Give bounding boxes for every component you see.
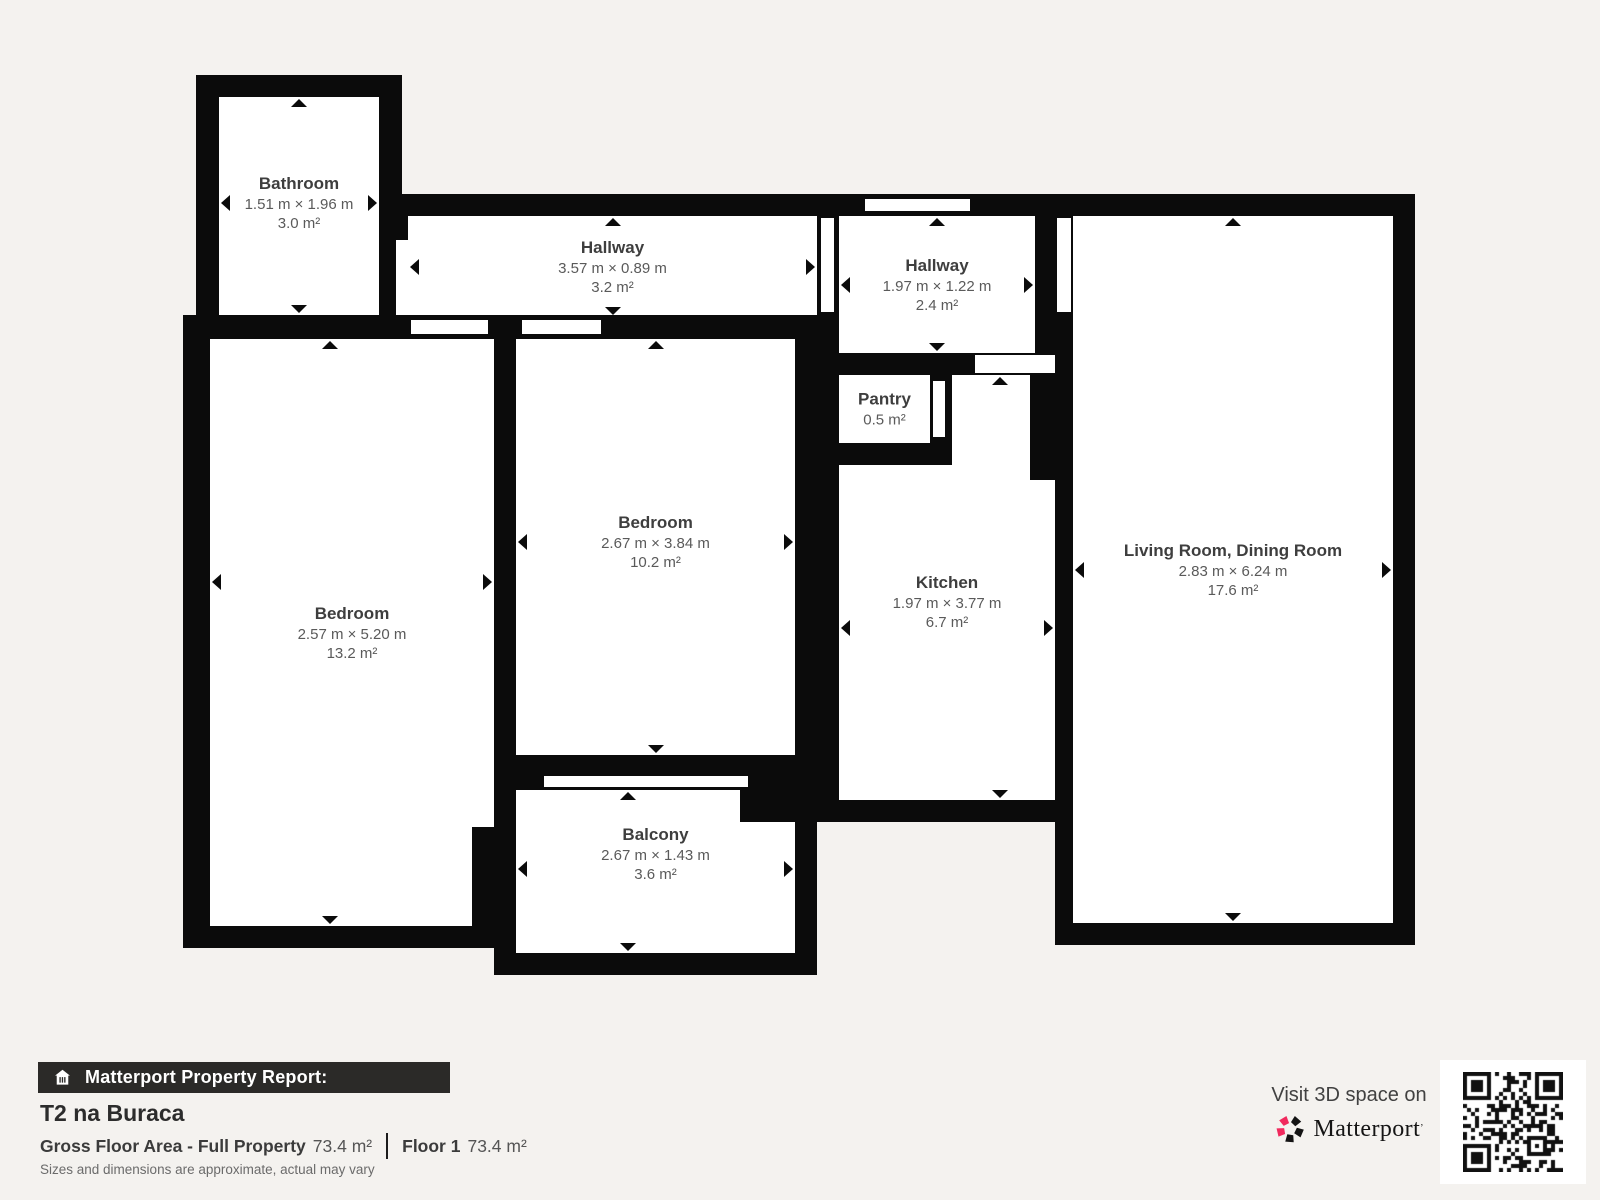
- up-measure-arrow-kitchen: [992, 377, 1008, 385]
- door-opening: [396, 240, 408, 315]
- room-dimensions: 2.57 m × 5.20 m: [298, 625, 407, 644]
- room-label-bedroom-left: Bedroom2.57 m × 5.20 m13.2 m²: [298, 603, 407, 663]
- wall: [817, 443, 952, 465]
- right-measure-arrow-bathroom: [368, 195, 377, 211]
- report-bar-label: Matterport Property Report:: [85, 1067, 327, 1088]
- left-measure-arrow-bedroom-left: [212, 574, 221, 590]
- right-measure-arrow-balcony: [784, 861, 793, 877]
- up-measure-arrow-bedroom-left: [322, 341, 338, 349]
- room-area: 10.2 m²: [601, 553, 710, 572]
- room-name: Pantry: [858, 389, 911, 411]
- divider: [386, 1133, 388, 1159]
- brand-mark: ’: [1420, 1124, 1423, 1134]
- floor-area-info: Gross Floor Area - Full Property 73.4 m²…: [40, 1133, 527, 1159]
- gross-floor-area-label: Gross Floor Area - Full Property: [40, 1136, 306, 1157]
- right-measure-arrow-bedroom-center: [784, 534, 793, 550]
- down-measure-arrow-hallway-entry: [929, 343, 945, 351]
- room-area: 2.4 m²: [883, 296, 992, 315]
- house-icon: [53, 1068, 72, 1087]
- up-measure-arrow-bedroom-center: [648, 341, 664, 349]
- up-measure-arrow-balcony: [620, 792, 636, 800]
- down-measure-arrow-hallway-top: [605, 307, 621, 315]
- down-measure-arrow-balcony: [620, 943, 636, 951]
- room-label-bathroom: Bathroom1.51 m × 1.96 m3.0 m²: [245, 173, 354, 233]
- left-measure-arrow-kitchen: [841, 620, 850, 636]
- door-opening: [1057, 218, 1071, 312]
- door-opening: [821, 218, 834, 312]
- window-opening: [544, 776, 748, 787]
- wall: [795, 755, 817, 975]
- room-dimensions: 2.67 m × 3.84 m: [601, 534, 710, 553]
- room-label-hallway-entry: Hallway1.97 m × 1.22 m2.4 m²: [883, 255, 992, 315]
- room-name: Living Room, Dining Room: [1124, 540, 1342, 562]
- floor-label: Floor 1: [402, 1136, 460, 1157]
- down-measure-arrow-bedroom-left: [322, 916, 338, 924]
- room-kitchen: [952, 375, 1030, 465]
- floor-value: 73.4 m²: [467, 1136, 526, 1157]
- room-name: Balcony: [601, 824, 710, 846]
- wall: [196, 75, 219, 337]
- left-measure-arrow-bathroom: [221, 195, 230, 211]
- matterport-wordmark: Matterport: [1314, 1116, 1421, 1143]
- room-name: Kitchen: [893, 572, 1002, 594]
- left-measure-arrow-hallway-top: [410, 259, 419, 275]
- room-label-balcony: Balcony2.67 m × 1.43 m3.6 m²: [601, 824, 710, 884]
- up-measure-arrow-living-dining: [1225, 218, 1241, 226]
- down-measure-arrow-kitchen: [992, 790, 1008, 798]
- room-label-living-dining: Living Room, Dining Room2.83 m × 6.24 m1…: [1124, 540, 1342, 600]
- room-area: 0.5 m²: [858, 411, 911, 430]
- matterport-floorplan-report: Bathroom1.51 m × 1.96 m3.0 m²Hallway3.57…: [0, 0, 1600, 1200]
- down-measure-arrow-living-dining: [1225, 913, 1241, 921]
- left-measure-arrow-hallway-entry: [841, 277, 850, 293]
- wall: [183, 926, 494, 948]
- room-area: 13.2 m²: [298, 644, 407, 663]
- down-measure-arrow-bedroom-center: [648, 745, 664, 753]
- right-measure-arrow-hallway-top: [806, 259, 815, 275]
- wall: [183, 315, 210, 948]
- property-title: T2 na Buraca: [40, 1100, 184, 1127]
- right-measure-arrow-living-dining: [1382, 562, 1391, 578]
- room-area: 17.6 m²: [1124, 581, 1342, 600]
- right-measure-arrow-kitchen: [1044, 620, 1053, 636]
- room-dimensions: 1.97 m × 1.22 m: [883, 277, 992, 296]
- room-area: 3.0 m²: [245, 214, 354, 233]
- right-measure-arrow-bedroom-left: [483, 574, 492, 590]
- up-measure-arrow-hallway-top: [605, 218, 621, 226]
- room-dimensions: 1.97 m × 3.77 m: [893, 594, 1002, 613]
- room-dimensions: 1.51 m × 1.96 m: [245, 195, 354, 214]
- left-measure-arrow-bedroom-center: [518, 534, 527, 550]
- visit-3d-promo: Visit 3D space on Matterport’: [1254, 1083, 1444, 1144]
- wall: [472, 827, 494, 926]
- window-opening: [522, 320, 601, 334]
- room-name: Bathroom: [245, 173, 354, 195]
- room-label-pantry: Pantry0.5 m²: [858, 389, 911, 430]
- room-name: Hallway: [883, 255, 992, 277]
- room-area: 3.2 m²: [558, 278, 667, 297]
- right-measure-arrow-hallway-entry: [1024, 277, 1033, 293]
- up-measure-arrow-bathroom: [291, 99, 307, 107]
- wall: [494, 315, 516, 975]
- visit-3d-text: Visit 3D space on: [1254, 1083, 1444, 1107]
- matterport-logo: Matterport’: [1254, 1114, 1444, 1144]
- wall: [1055, 923, 1415, 945]
- window-opening: [865, 199, 970, 211]
- up-measure-arrow-hallway-entry: [929, 218, 945, 226]
- room-dimensions: 3.57 m × 0.89 m: [558, 259, 667, 278]
- room-name: Bedroom: [601, 512, 710, 534]
- door-opening: [933, 381, 945, 437]
- qr-code: [1463, 1072, 1563, 1172]
- wall: [817, 353, 839, 800]
- room-label-hallway-top: Hallway3.57 m × 0.89 m3.2 m²: [558, 237, 667, 297]
- wall: [795, 339, 817, 755]
- left-measure-arrow-living-dining: [1075, 562, 1084, 578]
- down-measure-arrow-bathroom: [291, 305, 307, 313]
- wall: [1055, 480, 1073, 923]
- room-dimensions: 2.83 m × 6.24 m: [1124, 562, 1342, 581]
- wall: [817, 800, 1073, 822]
- report-bar: Matterport Property Report:: [38, 1062, 450, 1093]
- qr-card: [1440, 1060, 1586, 1184]
- door-opening: [975, 355, 1055, 373]
- room-dimensions: 2.67 m × 1.43 m: [601, 846, 710, 865]
- matterport-pinwheel-icon: [1275, 1114, 1305, 1144]
- room-kitchen: [839, 465, 1055, 800]
- wall: [494, 953, 817, 975]
- left-measure-arrow-balcony: [518, 861, 527, 877]
- wall: [1393, 194, 1415, 945]
- wall: [196, 75, 402, 97]
- window-opening: [411, 320, 488, 334]
- room-area: 6.7 m²: [893, 613, 1002, 632]
- room-label-bedroom-center: Bedroom2.67 m × 3.84 m10.2 m²: [601, 512, 710, 572]
- room-name: Hallway: [558, 237, 667, 259]
- gross-floor-area-value: 73.4 m²: [313, 1136, 372, 1157]
- disclaimer-text: Sizes and dimensions are approximate, ac…: [40, 1162, 375, 1177]
- room-name: Bedroom: [298, 603, 407, 625]
- room-label-kitchen: Kitchen1.97 m × 3.77 m6.7 m²: [893, 572, 1002, 632]
- room-area: 3.6 m²: [601, 865, 710, 884]
